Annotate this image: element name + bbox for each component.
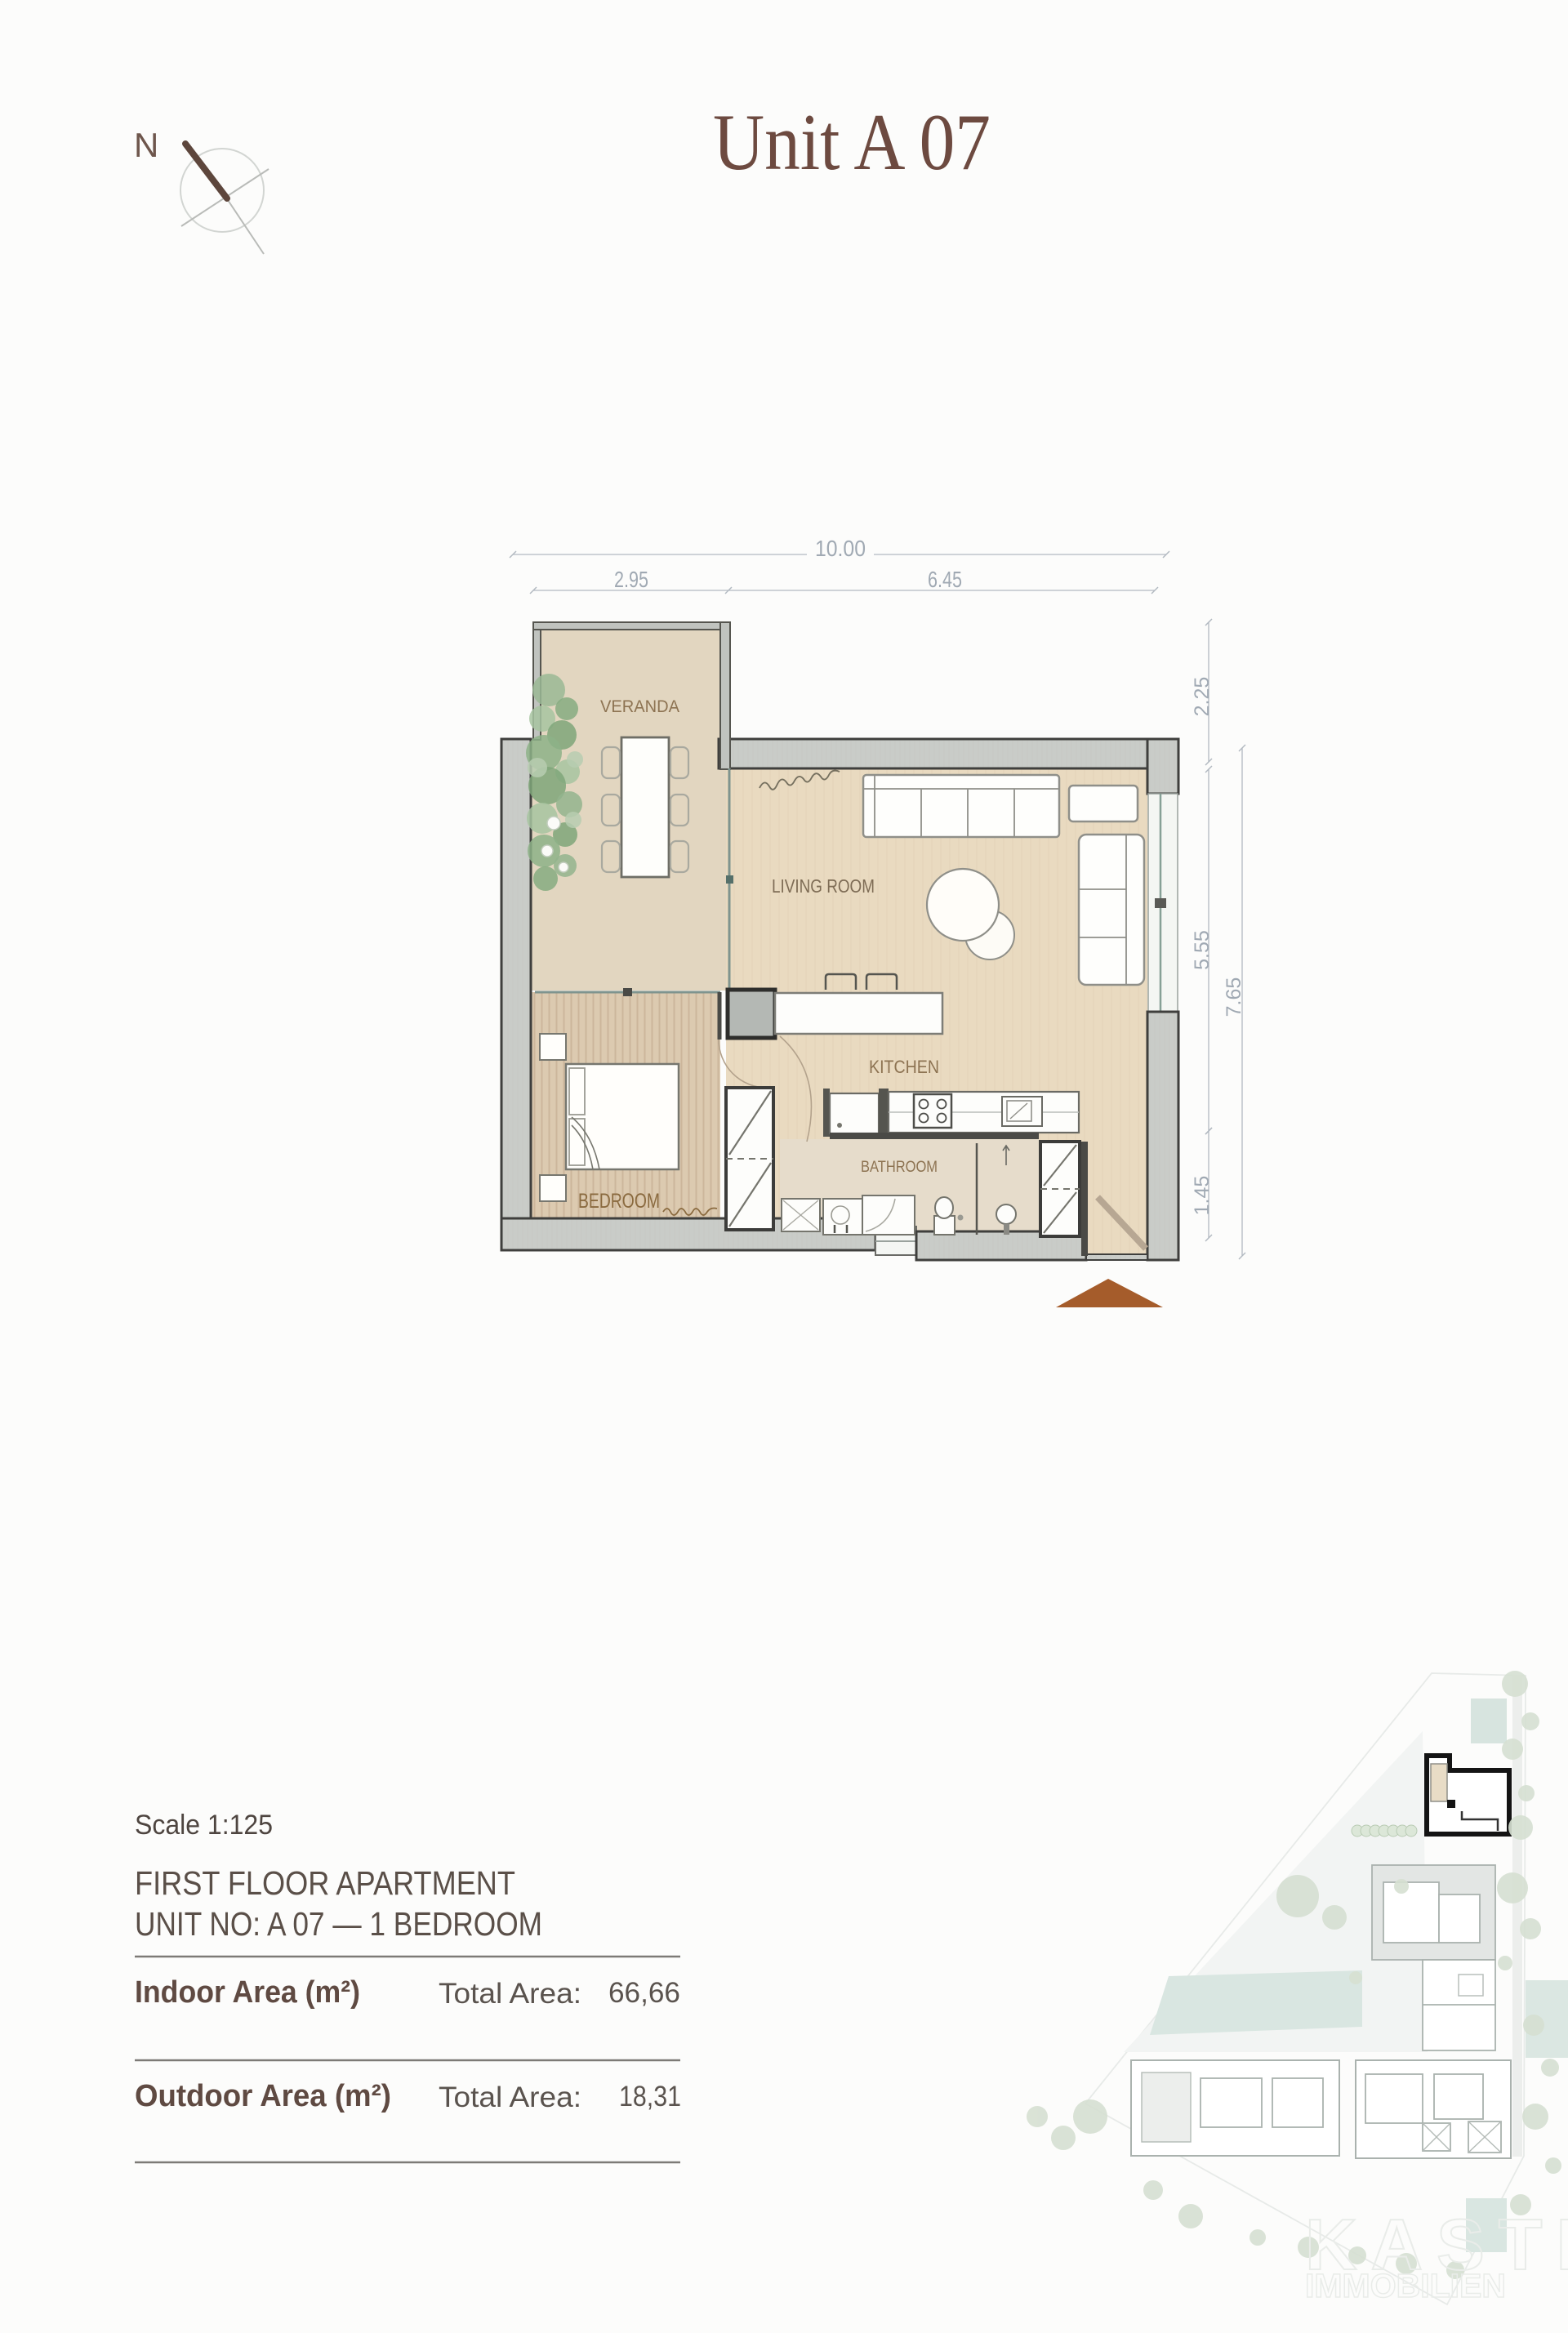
svg-text:Total Area:: Total Area:	[439, 2081, 581, 2113]
svg-text:Scale 1:125: Scale 1:125	[135, 1810, 273, 1841]
svg-text:6.45: 6.45	[928, 567, 962, 592]
svg-text:18,31: 18,31	[619, 2081, 681, 2113]
svg-text:VERANDA: VERANDA	[600, 697, 679, 716]
svg-text:LIVING ROOM: LIVING ROOM	[772, 875, 875, 897]
svg-text:5.55: 5.55	[1191, 930, 1214, 970]
svg-text:2.95: 2.95	[614, 567, 648, 592]
svg-text:BATHROOM: BATHROOM	[861, 1159, 938, 1176]
svg-text:66,66: 66,66	[608, 1977, 680, 2009]
svg-text:BEDROOM: BEDROOM	[578, 1190, 660, 1213]
svg-text:Unit A 07: Unit A 07	[713, 98, 991, 187]
svg-text:FIRST FLOOR APARTMENT: FIRST FLOOR APARTMENT	[135, 1864, 515, 1902]
svg-text:7.65: 7.65	[1223, 977, 1245, 1017]
svg-text:UNIT NO: A 07 — 1 BEDROOM: UNIT NO: A 07 — 1 BEDROOM	[135, 1905, 542, 1943]
svg-text:Total Area:: Total Area:	[439, 1978, 581, 2010]
svg-text:1.45: 1.45	[1191, 1176, 1214, 1216]
svg-text:10.00: 10.00	[815, 536, 866, 561]
svg-text:KITCHEN: KITCHEN	[869, 1057, 939, 1077]
svg-text:Outdoor Area (m²): Outdoor Area (m²)	[135, 2079, 391, 2113]
svg-text:N: N	[134, 126, 158, 164]
svg-text:2.25: 2.25	[1191, 677, 1214, 717]
svg-text:Indoor Area (m²): Indoor Area (m²)	[135, 1975, 360, 2010]
svg-text:IMMOBILIEN: IMMOBILIEN	[1305, 2267, 1506, 2304]
